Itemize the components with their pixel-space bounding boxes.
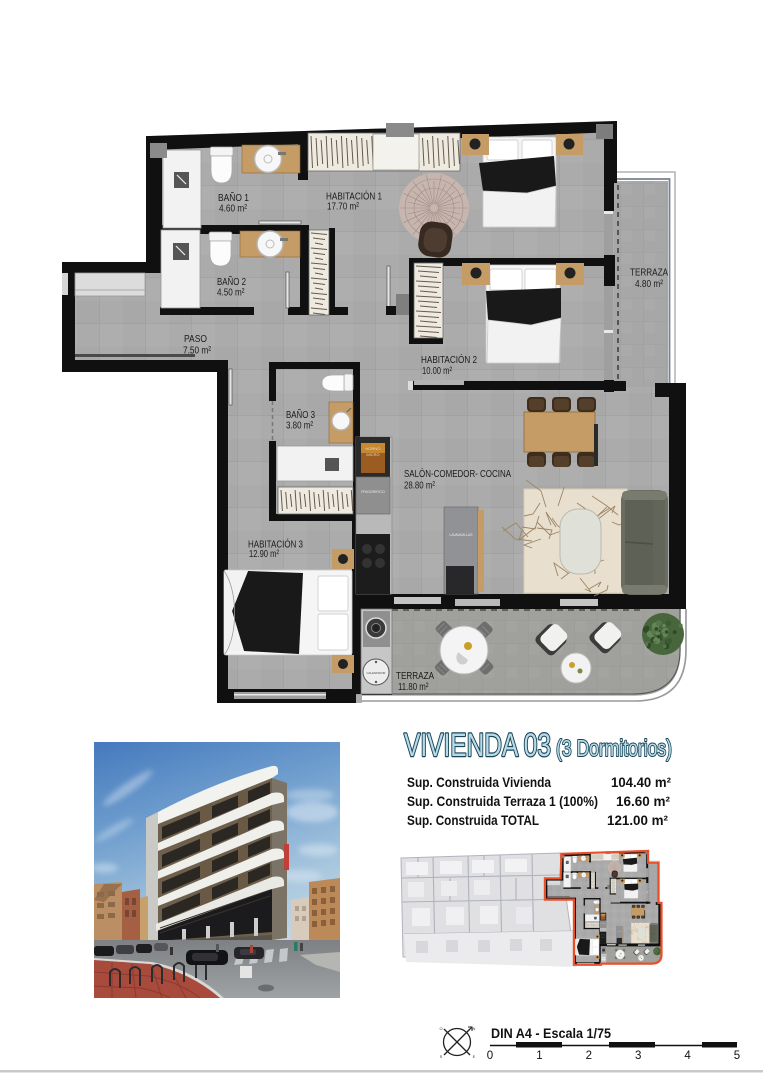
svg-text:VIVIENDA 03: VIVIENDA 03	[404, 727, 551, 763]
svg-text:10.00 m²: 10.00 m²	[422, 366, 453, 377]
svg-text:17.70 m²: 17.70 m²	[327, 202, 360, 213]
svg-text:CALENTADOR: CALENTADOR	[367, 671, 386, 675]
svg-text:(3 Dormitorios): (3 Dormitorios)	[556, 735, 672, 761]
svg-text:BAÑO 3: BAÑO 3	[286, 408, 315, 421]
svg-text:N: N	[473, 1026, 476, 1031]
svg-text:E: E	[473, 1054, 476, 1059]
svg-text:Sup. Construida Vivienda: Sup. Construida Vivienda	[407, 775, 551, 790]
svg-text:121.00 m²: 121.00 m²	[607, 813, 668, 828]
svg-text:TERRAZA: TERRAZA	[396, 671, 434, 682]
svg-text:BAÑO 2: BAÑO 2	[217, 275, 246, 288]
svg-text:16.60 m²: 16.60 m²	[616, 794, 670, 809]
svg-text:5: 5	[734, 1050, 740, 1062]
svg-text:28.80 m²: 28.80 m²	[404, 481, 436, 492]
svg-text:S: S	[440, 1054, 443, 1059]
svg-text:HABITACIÓN 2: HABITACIÓN 2	[421, 353, 477, 366]
svg-text:BAÑO 1: BAÑO 1	[218, 191, 249, 204]
svg-text:1: 1	[536, 1050, 542, 1062]
svg-text:4.80 m²: 4.80 m²	[635, 279, 664, 290]
svg-text:TERRAZA: TERRAZA	[630, 268, 668, 279]
svg-text:DIN A4 - Escala 1/75: DIN A4 - Escala 1/75	[491, 1025, 611, 1041]
svg-text:104.40 m²: 104.40 m²	[611, 775, 671, 790]
svg-text:2: 2	[586, 1050, 592, 1062]
svg-text:3: 3	[635, 1050, 641, 1062]
svg-text:Sup. Construida Terraza 1 (100: Sup. Construida Terraza 1 (100%)	[407, 794, 598, 809]
svg-text:HORNO: HORNO	[366, 446, 381, 451]
svg-text:4.50 m²: 4.50 m²	[217, 288, 245, 299]
svg-text:Sup. Construida TOTAL: Sup. Construida TOTAL	[407, 813, 539, 828]
svg-text:12.90 m²: 12.90 m²	[249, 549, 280, 560]
svg-text:FRIGORIFICO: FRIGORIFICO	[361, 490, 385, 494]
svg-text:3.80 m²: 3.80 m²	[286, 421, 314, 432]
svg-text:MICRO: MICRO	[366, 452, 379, 457]
svg-text:SALÓN-COMEDOR- COCINA: SALÓN-COMEDOR- COCINA	[404, 467, 511, 480]
svg-text:4: 4	[684, 1050, 691, 1062]
svg-text:0: 0	[487, 1050, 493, 1062]
svg-text:4.60 m²: 4.60 m²	[219, 204, 248, 215]
svg-text:LAVAVAJILLAS: LAVAVAJILLAS	[449, 533, 473, 537]
svg-text:PASO: PASO	[184, 334, 207, 345]
svg-text:7.50 m²: 7.50 m²	[183, 346, 212, 357]
svg-text:11.80 m²: 11.80 m²	[398, 682, 429, 693]
svg-text:O: O	[439, 1026, 442, 1031]
